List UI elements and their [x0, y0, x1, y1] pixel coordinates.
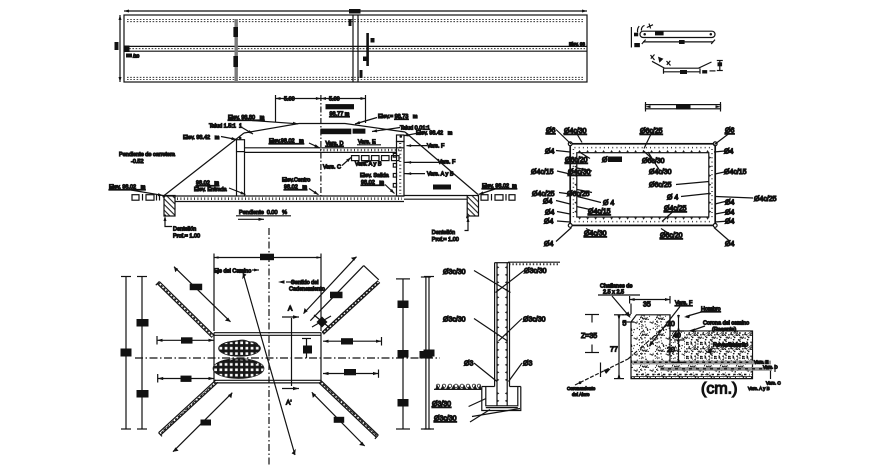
svg-text:Corona del camino: Corona del camino: [703, 321, 749, 327]
svg-text:Dentellón: Dentellón: [173, 227, 196, 233]
svg-text:40: 40: [673, 333, 681, 340]
svg-text:Prof.= 1.00: Prof.= 1.00: [173, 234, 200, 240]
svg-text:Pendiente de carretera: Pendiente de carretera: [119, 152, 176, 158]
svg-text:Cadenamiento: Cadenamiento: [289, 287, 325, 293]
svg-text:Vars. A y B: Vars. A y B: [748, 386, 770, 391]
svg-text:Ø4c/30: Ø4c/30: [564, 128, 587, 135]
svg-text:Elev. 98.42 m: Elev. 98.42 m: [416, 131, 453, 137]
svg-text:20: 20: [667, 347, 675, 354]
svg-text:Ø 4: Ø 4: [667, 195, 678, 202]
svg-text:5.00: 5.00: [329, 97, 340, 103]
svg-text:Ø4: Ø4: [725, 200, 734, 207]
svg-text:Ø6c/25: Ø6c/25: [567, 191, 590, 198]
svg-text:-0.52: -0.52: [131, 159, 144, 165]
svg-text:Vars. D: Vars. D: [763, 365, 778, 370]
svg-text:Ø6c/20: Ø6c/20: [565, 157, 588, 164]
svg-text:(Rasante): (Rasante): [712, 327, 736, 333]
svg-text:A': A': [286, 400, 292, 407]
svg-text:Dentellón: Dentellón: [432, 230, 455, 236]
svg-text:Vars. C: Vars. C: [323, 165, 341, 171]
svg-text:Elev. 98.42 m: Elev. 98.42 m: [183, 135, 220, 141]
svg-text:Ø4c/25: Ø4c/25: [532, 191, 555, 198]
svg-text:Ø4: Ø4: [724, 149, 733, 156]
svg-text:Ø3c/30: Ø3c/30: [524, 268, 547, 275]
svg-text:Ø4: Ø4: [725, 219, 734, 226]
svg-text:Pendiente 0.00 %: Pendiente 0.00 %: [239, 210, 287, 216]
svg-text:Ø4c/25: Ø4c/25: [664, 206, 687, 213]
svg-text:(cm.): (cm.): [701, 381, 737, 398]
svg-text:Vars. A y B: Vars. A y B: [427, 172, 454, 178]
svg-text:Ø4c/25: Ø4c/25: [754, 196, 777, 203]
svg-text:98.02 m: 98.02 m: [196, 181, 219, 187]
svg-text:98.02 m: 98.02 m: [361, 180, 384, 186]
svg-text:Ø3: Ø3: [523, 361, 532, 368]
svg-text:Ø4c/15: Ø4c/15: [724, 169, 747, 176]
svg-text:Vars. F: Vars. F: [675, 301, 693, 307]
svg-text:Ø: Ø: [602, 157, 608, 164]
svg-text:35: 35: [643, 302, 651, 309]
svg-text:Ø4: Ø4: [725, 210, 734, 217]
svg-text:Ø4c/15: Ø4c/15: [531, 169, 554, 176]
svg-text:98.77 m: 98.77 m: [330, 112, 350, 118]
svg-text:Elev. 98.02 m: Elev. 98.02 m: [482, 184, 517, 190]
svg-text:Hombro: Hombro: [701, 307, 721, 313]
svg-text:Sentido del: Sentido del: [291, 280, 319, 286]
svg-text:Elev. 98: Elev. 98: [569, 42, 585, 47]
svg-text:Elev. Entrada: Elev. Entrada: [194, 187, 228, 193]
svg-text:Vars. F: Vars. F: [427, 144, 445, 150]
svg-text:Ø3/30: Ø3/30: [432, 401, 451, 408]
svg-text:Vars. A y B: Vars. A y B: [355, 162, 382, 168]
svg-text:A: A: [288, 306, 293, 313]
svg-text:Ø4c/30: Ø4c/30: [649, 169, 672, 176]
svg-text:5.00: 5.00: [284, 97, 295, 103]
svg-text:Vars. F: Vars. F: [438, 160, 456, 166]
svg-text:Ø6c/25: Ø6c/25: [640, 128, 663, 135]
svg-text:Ø4: Ø4: [725, 241, 734, 248]
svg-text:Coronamiento: Coronamiento: [567, 386, 596, 391]
svg-text:Ø4c/15: Ø4c/15: [588, 209, 611, 216]
svg-text:Revestimiento: Revestimiento: [713, 343, 748, 349]
svg-text:Ø6: Ø6: [546, 128, 555, 135]
svg-text:Ø4: Ø4: [545, 210, 554, 217]
svg-text:5: 5: [623, 321, 627, 328]
svg-text:Ø3c/30: Ø3c/30: [443, 269, 466, 276]
svg-text:Elev. Salida: Elev. Salida: [360, 173, 390, 179]
svg-text:Elev.Centro: Elev.Centro: [282, 178, 310, 184]
svg-text:del Alero: del Alero: [572, 392, 590, 397]
svg-text:Z=35: Z=35: [581, 333, 597, 340]
svg-text:Eje del Camino: Eje del Camino: [214, 269, 251, 275]
svg-text:Talud 1.5:1 1: Talud 1.5:1 1: [209, 124, 242, 130]
svg-text:Ø3: Ø3: [464, 361, 473, 368]
svg-text:98.02 m: 98.02 m: [284, 185, 307, 191]
svg-text:Ø4: Ø4: [545, 149, 554, 156]
svg-text:Ø3c/30: Ø3c/30: [443, 317, 466, 324]
svg-text:Ø4c/30: Ø4c/30: [584, 231, 607, 238]
svg-text:Elev.98.02 m: Elev.98.02 m: [269, 139, 304, 145]
svg-text:Ø4: Ø4: [544, 241, 553, 248]
svg-text:Ø3c/30: Ø3c/30: [523, 317, 546, 324]
svg-text:Elev.= 98.73 m: Elev.= 98.73 m: [378, 114, 418, 120]
svg-text:Ø4c/30: Ø4c/30: [568, 169, 591, 176]
svg-text:/20: /20: [133, 54, 140, 59]
svg-text:Prof.= 1.00: Prof.= 1.00: [432, 237, 459, 243]
svg-text:Ø4: Ø4: [543, 199, 552, 206]
svg-text:Vars. C: Vars. C: [766, 381, 781, 386]
svg-text:Ø3c/30: Ø3c/30: [434, 416, 457, 423]
svg-text:Ø6c/30: Ø6c/30: [642, 158, 665, 165]
svg-text:Elev. 98.80 m: Elev. 98.80 m: [228, 115, 265, 121]
svg-text:Ø6c/20: Ø6c/20: [660, 233, 683, 240]
svg-text:Vars. D: Vars. D: [326, 141, 344, 147]
svg-text:Ø6: Ø6: [725, 128, 734, 135]
svg-text:Elev. 98.02 m: Elev. 98.02 m: [109, 185, 146, 191]
svg-text:Ø 4: Ø 4: [603, 200, 614, 207]
svg-text:Ø6c/25: Ø6c/25: [649, 182, 672, 189]
svg-text:Ø4: Ø4: [544, 219, 553, 226]
svg-text:77: 77: [610, 347, 618, 354]
